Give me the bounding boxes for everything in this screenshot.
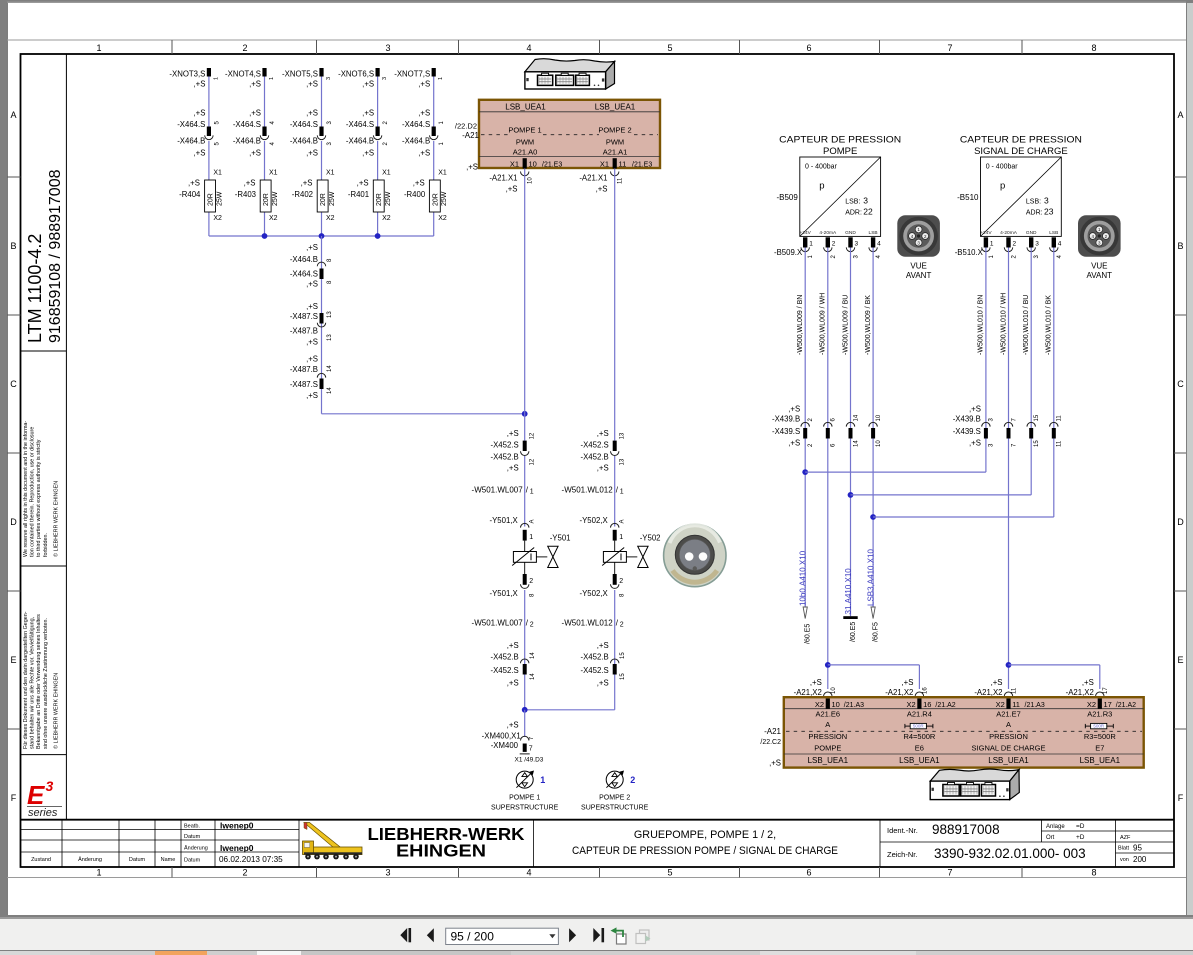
svg-text:11: 11: [1057, 440, 1063, 447]
svg-text:-W500,WL010 / BK: -W500,WL010 / BK: [1046, 295, 1053, 355]
svg-text:,+S: ,+S: [507, 429, 519, 438]
svg-text:10: 10: [876, 440, 882, 447]
svg-text:-A21,X2: -A21,X2: [974, 688, 1002, 697]
svg-text:20R: 20R: [432, 193, 439, 206]
svg-text:sind ohne unsere ausdrückliche: sind ohne unsere ausdrückliche Zustimmun…: [43, 618, 49, 749]
svg-text:A: A: [619, 519, 625, 523]
svg-text:20R: 20R: [208, 193, 215, 206]
svg-text:5: 5: [214, 121, 220, 125]
svg-text:ADR:: ADR:: [845, 209, 862, 216]
svg-text:500R: 500R: [1093, 724, 1105, 729]
svg-text:-X452.S: -X452.S: [581, 441, 609, 450]
svg-text:X2: X2: [438, 215, 447, 222]
svg-text:3: 3: [1035, 241, 1039, 248]
svg-text:,+S: ,+S: [306, 109, 318, 118]
svg-text:E: E: [10, 655, 16, 665]
svg-text:A: A: [825, 720, 830, 729]
svg-text:2: 2: [530, 621, 534, 628]
svg-text:-XM400: -XM400: [491, 741, 519, 750]
svg-text:to third parties without expre: to third parties without express authori…: [36, 439, 42, 557]
svg-text:,+S: ,+S: [507, 641, 519, 650]
svg-text:1: 1: [808, 255, 814, 259]
svg-text:/60.E5: /60.E5: [850, 622, 857, 642]
svg-text:17: 17: [1103, 687, 1109, 694]
svg-text:25W: 25W: [441, 191, 448, 206]
svg-text:14: 14: [853, 440, 859, 447]
svg-text:11: 11: [618, 177, 624, 184]
svg-text:Änderung: Änderung: [184, 845, 208, 852]
svg-text:500R: 500R: [913, 724, 925, 729]
svg-text:AVANT: AVANT: [1087, 271, 1113, 280]
svg-text:X1: X1: [510, 160, 519, 169]
svg-text:-X464.S: -X464.S: [233, 120, 261, 129]
svg-text:-X487.S: -X487.S: [290, 380, 318, 389]
svg-text:-R402: -R402: [292, 190, 313, 199]
svg-text:POMPE 1: POMPE 1: [509, 795, 540, 802]
svg-text:A21.A0: A21.A0: [513, 148, 538, 157]
svg-text:15: 15: [620, 652, 626, 659]
svg-text:SIGNAL DE CHARGE: SIGNAL DE CHARGE: [972, 743, 1046, 752]
svg-text:A: A: [1006, 720, 1011, 729]
svg-text:11: 11: [1012, 700, 1020, 709]
svg-text:/21.A2: /21.A2: [935, 702, 955, 709]
svg-text:2: 2: [831, 255, 837, 259]
svg-text:B: B: [10, 241, 16, 251]
svg-text:stand behalten wir uns alle Re: stand behalten wir uns alle Rechte vor. …: [30, 616, 36, 749]
svg-text:3: 3: [863, 196, 868, 206]
svg-text:,+S: ,+S: [507, 679, 519, 688]
svg-text:95 / 200: 95 / 200: [451, 930, 495, 944]
svg-text:Name: Name: [161, 857, 176, 863]
svg-text:8: 8: [529, 593, 535, 597]
svg-text:-X439.S: -X439.S: [953, 427, 981, 436]
svg-text:Ort: Ort: [1046, 835, 1055, 841]
svg-text:-A21: -A21: [764, 727, 781, 736]
svg-text:PRESSION: PRESSION: [808, 732, 847, 741]
svg-text:X2: X2: [907, 700, 916, 709]
svg-text:,+S: ,+S: [306, 391, 318, 400]
svg-text:17: 17: [1104, 700, 1112, 709]
svg-text:4: 4: [1057, 255, 1063, 259]
svg-text:2: 2: [808, 418, 814, 422]
svg-text:,+S: ,+S: [507, 721, 519, 730]
svg-text:VUE: VUE: [1091, 261, 1107, 270]
svg-text:X2: X2: [269, 215, 278, 222]
svg-text:1: 1: [530, 489, 534, 496]
svg-text:-R400: -R400: [404, 190, 426, 199]
svg-text:-R403: -R403: [235, 190, 256, 199]
svg-text:A: A: [10, 110, 16, 120]
svg-text:LSB_UEA1: LSB_UEA1: [1080, 756, 1121, 765]
svg-text:13: 13: [620, 458, 626, 465]
svg-text:,+S: ,+S: [418, 80, 430, 89]
svg-text:-W501.WL012: -W501.WL012: [562, 486, 614, 495]
svg-text:-B509.X: -B509.X: [774, 248, 803, 257]
svg-text:Ident.-Nr.: Ident.-Nr.: [887, 826, 918, 835]
svg-text:2: 2: [529, 578, 533, 585]
svg-text:-X452.S: -X452.S: [491, 666, 519, 675]
svg-text:Zeich-Nr.: Zeich-Nr.: [887, 850, 917, 859]
svg-text:-Y502: -Y502: [640, 534, 661, 543]
svg-text:13: 13: [327, 334, 333, 341]
svg-text:5: 5: [214, 142, 220, 146]
svg-text:,+S: ,+S: [769, 758, 781, 767]
svg-text:11: 11: [1012, 687, 1018, 694]
svg-text:/21.A3: /21.A3: [844, 702, 864, 709]
svg-text:,+S: ,+S: [418, 148, 430, 157]
svg-text:X1: X1: [438, 170, 447, 177]
svg-text:,+S: ,+S: [597, 641, 609, 650]
svg-text:ADR:: ADR:: [1026, 209, 1043, 216]
svg-text:-A21.X1: -A21.X1: [579, 173, 607, 182]
svg-text:lwenep0: lwenep0: [220, 843, 254, 853]
svg-text:2: 2: [1013, 241, 1017, 248]
svg-text:-X464.B: -X464.B: [290, 136, 318, 145]
svg-text:10: 10: [529, 160, 537, 169]
svg-text:F: F: [11, 793, 17, 803]
svg-text:-A21,X2: -A21,X2: [1066, 688, 1094, 697]
svg-text:-XNOT6,S: -XNOT6,S: [338, 70, 374, 79]
svg-text:988917008: 988917008: [932, 822, 1000, 837]
svg-text:20R: 20R: [263, 193, 270, 206]
svg-text:/21.A2: /21.A2: [1116, 702, 1136, 709]
svg-text:LSB_UEA1: LSB_UEA1: [505, 103, 546, 112]
svg-text:20R: 20R: [320, 193, 327, 206]
svg-text:,+S: ,+S: [362, 80, 374, 89]
svg-text:LSB_UEA1: LSB_UEA1: [988, 756, 1029, 765]
svg-text:A21.E6: A21.E6: [815, 710, 840, 719]
svg-text:4-20mA: 4-20mA: [1000, 230, 1018, 236]
svg-text:11: 11: [1057, 415, 1063, 422]
svg-text:-Y501,X: -Y501,X: [490, 516, 519, 525]
svg-text:Blatt: Blatt: [1118, 846, 1129, 852]
svg-text:4-20mA: 4-20mA: [819, 230, 837, 236]
svg-text:22: 22: [863, 207, 873, 217]
svg-text:LSB: LSB: [1049, 230, 1058, 236]
svg-text:-X487.S: -X487.S: [290, 312, 318, 321]
svg-text:-X439.S: -X439.S: [772, 427, 800, 436]
svg-text:E: E: [27, 780, 45, 810]
svg-text:LSB3,A410.X10: LSB3,A410.X10: [867, 549, 876, 606]
svg-text:-W500,WL010 / BU: -W500,WL010 / BU: [1023, 295, 1030, 355]
svg-text:3: 3: [989, 418, 995, 422]
svg-text:GND: GND: [1026, 230, 1037, 236]
svg-text:+24V: +24V: [800, 230, 812, 236]
svg-text:-R401: -R401: [348, 190, 369, 199]
svg-text:4: 4: [526, 43, 531, 53]
svg-text:13: 13: [327, 311, 333, 318]
svg-text:,+S: ,+S: [418, 109, 430, 118]
svg-text:,+S: ,+S: [969, 439, 981, 448]
svg-text:Bekanntgabe an Dritte oder Ver: Bekanntgabe an Dritte oder Verwendung se…: [36, 614, 42, 749]
svg-text:31.A410.X10: 31.A410.X10: [844, 568, 853, 615]
svg-text:2: 2: [242, 868, 247, 878]
svg-text:2: 2: [620, 621, 624, 628]
svg-text:2: 2: [630, 775, 635, 785]
svg-text:14: 14: [530, 652, 536, 659]
svg-text:,+S: ,+S: [969, 405, 981, 414]
svg-text:lwenep0: lwenep0: [220, 821, 254, 831]
svg-text:3: 3: [854, 255, 860, 259]
svg-text:15: 15: [1034, 440, 1040, 447]
svg-text:-A21: -A21: [462, 131, 479, 140]
svg-text:Änderung: Änderung: [78, 856, 102, 863]
svg-text:VUE: VUE: [910, 261, 926, 270]
svg-text:20R: 20R: [376, 193, 383, 206]
svg-text:X1: X1: [326, 170, 335, 177]
svg-text:A: A: [1177, 110, 1183, 120]
svg-text:-X464.S: -X464.S: [346, 120, 374, 129]
svg-text:-X452.S: -X452.S: [491, 441, 519, 450]
svg-text:8: 8: [327, 280, 333, 284]
svg-text:2: 2: [242, 43, 247, 53]
svg-text:-W500,WL010 / BN: -W500,WL010 / BN: [978, 295, 985, 355]
svg-text:-R404: -R404: [179, 190, 201, 199]
svg-text:X1: X1: [269, 170, 278, 177]
svg-text:-X452.B: -X452.B: [581, 652, 609, 661]
svg-text:8: 8: [1091, 868, 1096, 878]
svg-text:0 - 400bar: 0 - 400bar: [986, 163, 1019, 170]
svg-text:-X487.B: -X487.B: [290, 365, 318, 374]
svg-text:X2: X2: [815, 700, 824, 709]
svg-text:+D: +D: [1076, 834, 1085, 841]
svg-text:,+S: ,+S: [306, 355, 318, 364]
svg-text:4: 4: [270, 142, 276, 146]
svg-text:CAPTEUR DE PRESSION POMPE / SI: CAPTEUR DE PRESSION POMPE / SIGNAL DE CH…: [572, 845, 838, 857]
svg-text:/: /: [616, 619, 619, 628]
svg-text:6: 6: [806, 43, 811, 53]
svg-text:1: 1: [269, 77, 275, 80]
svg-text:7: 7: [1011, 418, 1017, 422]
svg-text:LSB_UEA1: LSB_UEA1: [899, 756, 940, 765]
svg-text:,+S: ,+S: [306, 280, 318, 289]
svg-text:D: D: [10, 517, 17, 527]
svg-text:X1: X1: [600, 160, 609, 169]
svg-text:X2: X2: [326, 215, 335, 222]
svg-text:,+S: ,+S: [788, 439, 800, 448]
svg-text:1: 1: [619, 534, 623, 541]
svg-text:/22.C2: /22.C2: [760, 739, 781, 746]
svg-text:E7: E7: [1095, 743, 1104, 752]
svg-text:C: C: [10, 379, 17, 389]
svg-text:-XNOT5,S: -XNOT5,S: [282, 70, 318, 79]
svg-text:,+S: ,+S: [413, 179, 425, 188]
svg-text:/: /: [616, 486, 619, 495]
svg-text:1: 1: [96, 868, 101, 878]
svg-text:Datum: Datum: [184, 834, 201, 840]
svg-text:-A21,X2: -A21,X2: [794, 688, 822, 697]
svg-text:A21.A1: A21.A1: [603, 148, 628, 157]
svg-text:25W: 25W: [272, 191, 279, 206]
svg-text:CAPTEUR DE PRESSION: CAPTEUR DE PRESSION: [779, 134, 901, 145]
svg-text:-X464.B: -X464.B: [177, 136, 205, 145]
svg-text:3: 3: [385, 43, 390, 53]
svg-text:,+S: ,+S: [193, 148, 205, 157]
svg-text:25W: 25W: [216, 191, 223, 206]
svg-text:8: 8: [1091, 43, 1096, 53]
svg-text:-Y502,X: -Y502,X: [580, 516, 609, 525]
svg-text:-Y501: -Y501: [550, 534, 571, 543]
svg-text:06.02.2013 07:35: 06.02.2013 07:35: [219, 855, 283, 864]
svg-text:1: 1: [529, 534, 533, 541]
svg-text:1: 1: [213, 77, 219, 80]
svg-text:-W500,WL009 / BU: -W500,WL009 / BU: [842, 295, 849, 355]
svg-text:7: 7: [1011, 443, 1017, 447]
svg-text:-W501.WL007: -W501.WL007: [472, 486, 524, 495]
svg-text:Anlage: Anlage: [1046, 824, 1065, 830]
svg-text:,+S: ,+S: [249, 109, 261, 118]
svg-text:3390-932.02.01.000- 003: 3390-932.02.01.000- 003: [934, 846, 1086, 861]
svg-text:POMPE 2: POMPE 2: [599, 795, 630, 802]
svg-text:-W500,WL009 / BK: -W500,WL009 / BK: [865, 295, 872, 355]
svg-text:E6: E6: [915, 743, 924, 752]
svg-text:-W500,WL010 / WH: -W500,WL010 / WH: [1000, 293, 1007, 355]
svg-text:-XNOT4,S: -XNOT4,S: [225, 70, 261, 79]
svg-text:-B509: -B509: [776, 193, 798, 202]
svg-text:2: 2: [383, 142, 389, 146]
svg-text:4: 4: [877, 241, 881, 248]
svg-text:/: /: [526, 619, 529, 628]
svg-text:15: 15: [620, 673, 626, 680]
svg-text:-X452.B: -X452.B: [581, 452, 609, 461]
svg-text:,+S: ,+S: [991, 678, 1003, 687]
svg-text:EHINGEN: EHINGEN: [396, 841, 486, 861]
svg-text:,+S: ,+S: [596, 184, 608, 193]
svg-text:10: 10: [831, 687, 837, 694]
svg-text:4: 4: [526, 868, 531, 878]
svg-text:PRESSION: PRESSION: [989, 732, 1028, 741]
svg-text:3: 3: [46, 778, 54, 794]
svg-text:SUPERSTRUCTURE: SUPERSTRUCTURE: [581, 804, 649, 811]
svg-text:/: /: [526, 486, 529, 495]
svg-text:F: F: [1178, 793, 1184, 803]
svg-text:R4=500R: R4=500R: [903, 732, 935, 741]
svg-text:R3=500R: R3=500R: [1084, 732, 1116, 741]
svg-text:X2: X2: [382, 215, 391, 222]
svg-text:15: 15: [1034, 414, 1040, 421]
svg-text:/60.F5: /60.F5: [873, 622, 880, 642]
svg-text:95: 95: [1133, 844, 1142, 853]
svg-text:-X464.B: -X464.B: [233, 136, 261, 145]
svg-text:forbidden.: forbidden.: [43, 533, 49, 557]
svg-text:-X464.B: -X464.B: [290, 255, 318, 264]
svg-text:4: 4: [1058, 241, 1062, 248]
svg-text:6: 6: [806, 868, 811, 878]
svg-text:2: 2: [619, 578, 623, 585]
svg-text:-B510: -B510: [957, 193, 979, 202]
svg-text:10b0.A410.X10: 10b0.A410.X10: [799, 550, 808, 606]
svg-text:POMPE: POMPE: [823, 146, 857, 157]
svg-text:7: 7: [529, 746, 533, 753]
svg-text:LSB:: LSB:: [1026, 198, 1041, 205]
svg-text:-W500,WL009 / WH: -W500,WL009 / WH: [820, 293, 827, 355]
svg-text:3: 3: [385, 868, 390, 878]
svg-text:A21.R4: A21.R4: [907, 710, 932, 719]
svg-text:,+S: ,+S: [1082, 678, 1094, 687]
svg-text:-X452.B: -X452.B: [491, 652, 519, 661]
svg-text:-X464.S: -X464.S: [290, 120, 318, 129]
svg-text:2: 2: [1012, 255, 1018, 259]
svg-text:POMPE 2: POMPE 2: [598, 126, 631, 135]
svg-text:-A21.X1: -A21.X1: [489, 173, 517, 182]
svg-text:B: B: [1177, 241, 1183, 251]
svg-text:=D: =D: [1076, 823, 1085, 830]
svg-text:-Y501,X: -Y501,X: [490, 589, 519, 598]
svg-text:7: 7: [529, 737, 535, 740]
svg-text:LSB_UEA1: LSB_UEA1: [808, 756, 849, 765]
svg-text:10: 10: [832, 700, 840, 709]
svg-text:25W: 25W: [329, 191, 336, 206]
svg-text:Für dieses Dokument und den da: Für dieses Dokument und den darin darges…: [23, 611, 29, 749]
svg-text:LSB:: LSB:: [845, 198, 860, 205]
svg-text:Beatb.: Beatb.: [184, 824, 200, 830]
svg-text:PWM: PWM: [516, 137, 534, 146]
svg-text:X1: X1: [213, 170, 222, 177]
svg-text:POMPE 1: POMPE 1: [508, 126, 541, 135]
svg-text:1: 1: [989, 255, 995, 259]
svg-text:LSB: LSB: [869, 230, 878, 236]
svg-text:25W: 25W: [385, 191, 392, 206]
svg-text:X2: X2: [1087, 700, 1096, 709]
svg-text:p: p: [1000, 181, 1005, 192]
svg-text:12: 12: [530, 458, 536, 465]
svg-text:8: 8: [327, 258, 333, 262]
svg-text:AVANT: AVANT: [906, 271, 932, 280]
svg-text:-B510.X: -B510.X: [955, 248, 984, 257]
svg-text:8: 8: [619, 593, 625, 597]
svg-text:2: 2: [808, 443, 814, 447]
svg-text:916859108 / 988917008: 916859108 / 988917008: [47, 169, 64, 343]
svg-text:3: 3: [989, 443, 995, 447]
svg-text:3: 3: [1044, 196, 1049, 206]
svg-text:© LIEBHERR WERK EHINGEN: © LIEBHERR WERK EHINGEN: [52, 673, 59, 749]
svg-text:,+S: ,+S: [306, 243, 318, 252]
svg-text:-X452.B: -X452.B: [491, 452, 519, 461]
svg-text:23: 23: [1044, 207, 1054, 217]
svg-text:2: 2: [383, 121, 389, 125]
svg-text:X2: X2: [213, 215, 222, 222]
svg-text:3: 3: [382, 77, 388, 80]
svg-text:,+S: ,+S: [306, 302, 318, 311]
svg-text:-XM400,X1: -XM400,X1: [482, 732, 521, 741]
svg-text:,+S: ,+S: [597, 679, 609, 688]
svg-text:3: 3: [855, 241, 859, 248]
svg-text:,+S: ,+S: [362, 109, 374, 118]
svg-text:,+S: ,+S: [362, 148, 374, 157]
svg-text:-W500,WL009 / BN: -W500,WL009 / BN: [797, 295, 804, 355]
svg-text:1: 1: [439, 142, 445, 146]
svg-text:1: 1: [96, 43, 101, 53]
svg-text:,+S: ,+S: [597, 429, 609, 438]
svg-text:,+S: ,+S: [466, 162, 478, 171]
svg-text:-A21,X2: -A21,X2: [885, 688, 913, 697]
svg-text:E: E: [1177, 655, 1183, 665]
svg-text:14: 14: [530, 673, 536, 680]
svg-text:series: series: [28, 807, 58, 819]
svg-text:10: 10: [876, 414, 882, 421]
svg-text:14: 14: [853, 414, 859, 421]
svg-text:-X439.B: -X439.B: [953, 415, 981, 424]
svg-text:14: 14: [327, 365, 333, 372]
svg-text:SUPERSTRUCTURE: SUPERSTRUCTURE: [491, 804, 559, 811]
svg-text:4: 4: [876, 255, 882, 259]
svg-text:3: 3: [327, 142, 333, 146]
svg-text:© LIEBHERR WERK EHINGEN: © LIEBHERR WERK EHINGEN: [52, 481, 59, 557]
svg-text:Zustand: Zustand: [31, 857, 51, 863]
svg-text:-X439.B: -X439.B: [772, 415, 800, 424]
svg-text:-XNOT7,S: -XNOT7,S: [394, 70, 430, 79]
svg-text:,+S: ,+S: [810, 678, 822, 687]
